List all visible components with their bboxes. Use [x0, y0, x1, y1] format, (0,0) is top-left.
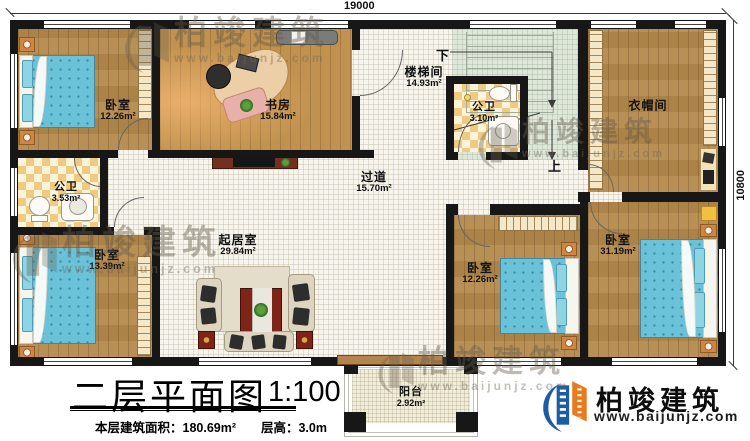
toilet-tank: [510, 84, 517, 102]
room-name: 衣帽间: [628, 99, 667, 112]
title-underline: [70, 406, 296, 409]
room-area: 14.93m²: [404, 79, 443, 90]
room-name: 卧室: [100, 99, 135, 112]
wall: [486, 152, 528, 160]
dimension-width-label: 19000: [344, 0, 375, 12]
dresser-item: [702, 152, 715, 164]
room-label-balcony: 阳台 2.92m²: [397, 386, 426, 408]
floor-plan-canvas: 19000 10800 下 上: [0, 0, 750, 441]
wall: [446, 204, 454, 366]
wall: [578, 20, 588, 170]
window: [477, 357, 561, 366]
window: [189, 20, 255, 29]
room-label-living: 起居室 29.84m²: [218, 234, 257, 258]
window: [612, 357, 697, 366]
room-label-bath-stair: 公卫 3.10m²: [470, 101, 499, 123]
room-area: 15.70m²: [356, 184, 391, 195]
title-underline: [70, 410, 296, 411]
side-table: [296, 331, 313, 349]
room-area: 2.92m²: [397, 398, 426, 408]
wall: [10, 227, 114, 235]
floor-height-value: 层高：3.0m: [261, 421, 327, 435]
toilet-icon: [489, 86, 510, 101]
window: [675, 20, 706, 29]
plant-icon: [240, 99, 253, 112]
room-area: 15.84m²: [260, 112, 295, 123]
window: [199, 357, 311, 366]
plant-icon: [281, 158, 290, 167]
pillow: [22, 94, 33, 122]
pillow: [22, 60, 33, 88]
office-chair: [206, 64, 231, 89]
wall: [622, 192, 718, 202]
nightstand: [19, 37, 35, 52]
sofa-cushion: [292, 307, 310, 326]
wall: [580, 202, 588, 366]
wardrobe: [138, 30, 152, 120]
sofa-cushion: [292, 283, 310, 302]
tv-icon: [233, 158, 275, 167]
dimension-line-right: [733, 20, 734, 366]
pillow: [556, 264, 567, 292]
window: [44, 20, 130, 29]
room-name: 起居室: [218, 234, 257, 247]
nightstand: [19, 130, 35, 145]
wall: [490, 204, 588, 215]
wall: [520, 76, 528, 160]
room-area: 3.53m²: [52, 193, 81, 203]
window: [10, 54, 18, 128]
company-website: www.baijunjz.com: [594, 408, 739, 424]
balcony-post: [344, 412, 366, 432]
company-logo-icon: [540, 376, 592, 434]
window: [44, 357, 132, 366]
wall: [148, 150, 160, 158]
room-area: 12.26m²: [462, 275, 497, 286]
plant-icon: [254, 303, 268, 317]
bed-headboard: [703, 239, 717, 338]
room-label-bedroom-br: 卧室 31.19m²: [600, 234, 635, 258]
room-label-bedroom-bm: 卧室 12.26m²: [462, 262, 497, 286]
nightstand: [700, 340, 717, 353]
room-name: 书房: [260, 99, 295, 112]
nightstand: [561, 336, 577, 350]
closet-shelves: [703, 30, 717, 146]
balcony-post: [456, 412, 478, 432]
room-name: 公卫: [470, 101, 499, 113]
room-name: 卧室: [600, 234, 635, 247]
pillow: [556, 298, 567, 326]
wardrobe: [498, 216, 578, 231]
wall: [446, 76, 528, 84]
stool: [701, 206, 717, 221]
room-label-stairwell: 楼梯间 14.93m²: [404, 66, 443, 90]
wall: [352, 96, 360, 158]
side-table: [198, 331, 215, 349]
plan-scale: 1:100: [268, 376, 341, 409]
pillow: [22, 256, 33, 290]
nightstand: [561, 242, 577, 256]
room-area: 31.19m²: [600, 247, 635, 258]
bed-headboard: [565, 258, 579, 334]
window: [718, 98, 726, 146]
wardrobe: [137, 256, 151, 356]
room-label-bedroom-bl: 卧室 13.39m²: [89, 249, 124, 273]
room-name: 阳台: [397, 386, 426, 398]
room-label-bath-upper: 公卫 3.53m²: [52, 181, 81, 203]
window: [718, 249, 726, 332]
wall: [152, 20, 160, 158]
room-name: 楼梯间: [404, 66, 443, 79]
sofa-cushion: [229, 334, 244, 350]
room-name: 卧室: [89, 249, 124, 262]
room-label-corridor: 过道 15.70m²: [356, 171, 391, 195]
wall: [446, 76, 454, 160]
room-label-cloakroom: 衣帽间: [628, 99, 667, 112]
cabinet: [276, 30, 338, 45]
wall: [160, 150, 374, 158]
wall: [152, 227, 160, 366]
sofa-cushion: [200, 307, 217, 324]
room-area: 13.39m²: [89, 262, 124, 273]
pillow: [22, 298, 33, 332]
dimension-line-top: [10, 13, 726, 14]
cabinet-box: [291, 31, 306, 44]
floor-area-value: 本层建筑面积：180.69m²: [95, 421, 236, 435]
dresser-item: [703, 170, 714, 184]
nightstand: [700, 224, 717, 237]
room-name: 过道: [356, 171, 391, 184]
toilet-icon: [29, 196, 50, 216]
sink-basin: [495, 123, 511, 139]
floor-area-text: 本层建筑面积：180.69m² 层高：3.0m: [95, 417, 327, 436]
room-name: 卧室: [462, 262, 497, 275]
toilet-tank: [31, 215, 48, 222]
room-area: 3.10m²: [470, 113, 499, 123]
stairs-down-label: 下: [436, 45, 449, 64]
window: [470, 20, 556, 29]
room-label-bedroom-tl: 卧室 12.26m²: [100, 99, 135, 123]
balcony-door: [337, 355, 443, 365]
window: [10, 253, 18, 345]
room-label-study: 书房 15.84m²: [260, 99, 295, 123]
stairs-up-label: 上: [548, 156, 561, 175]
room-area: 29.84m²: [218, 247, 257, 258]
pillow: [694, 248, 705, 284]
plan-title: 二层平面图: [72, 368, 267, 420]
sofa-cushion: [272, 334, 286, 349]
window: [591, 20, 636, 29]
room-name: 公卫: [52, 181, 81, 193]
room-area: 12.26m²: [100, 112, 135, 123]
window: [10, 168, 18, 216]
wall: [578, 192, 590, 202]
sofa-cushion: [200, 285, 217, 303]
wall: [100, 150, 108, 235]
wall: [446, 152, 458, 160]
sofa-cushion: [251, 334, 266, 350]
dimension-height-label: 10800: [735, 170, 747, 201]
window: [271, 20, 348, 29]
